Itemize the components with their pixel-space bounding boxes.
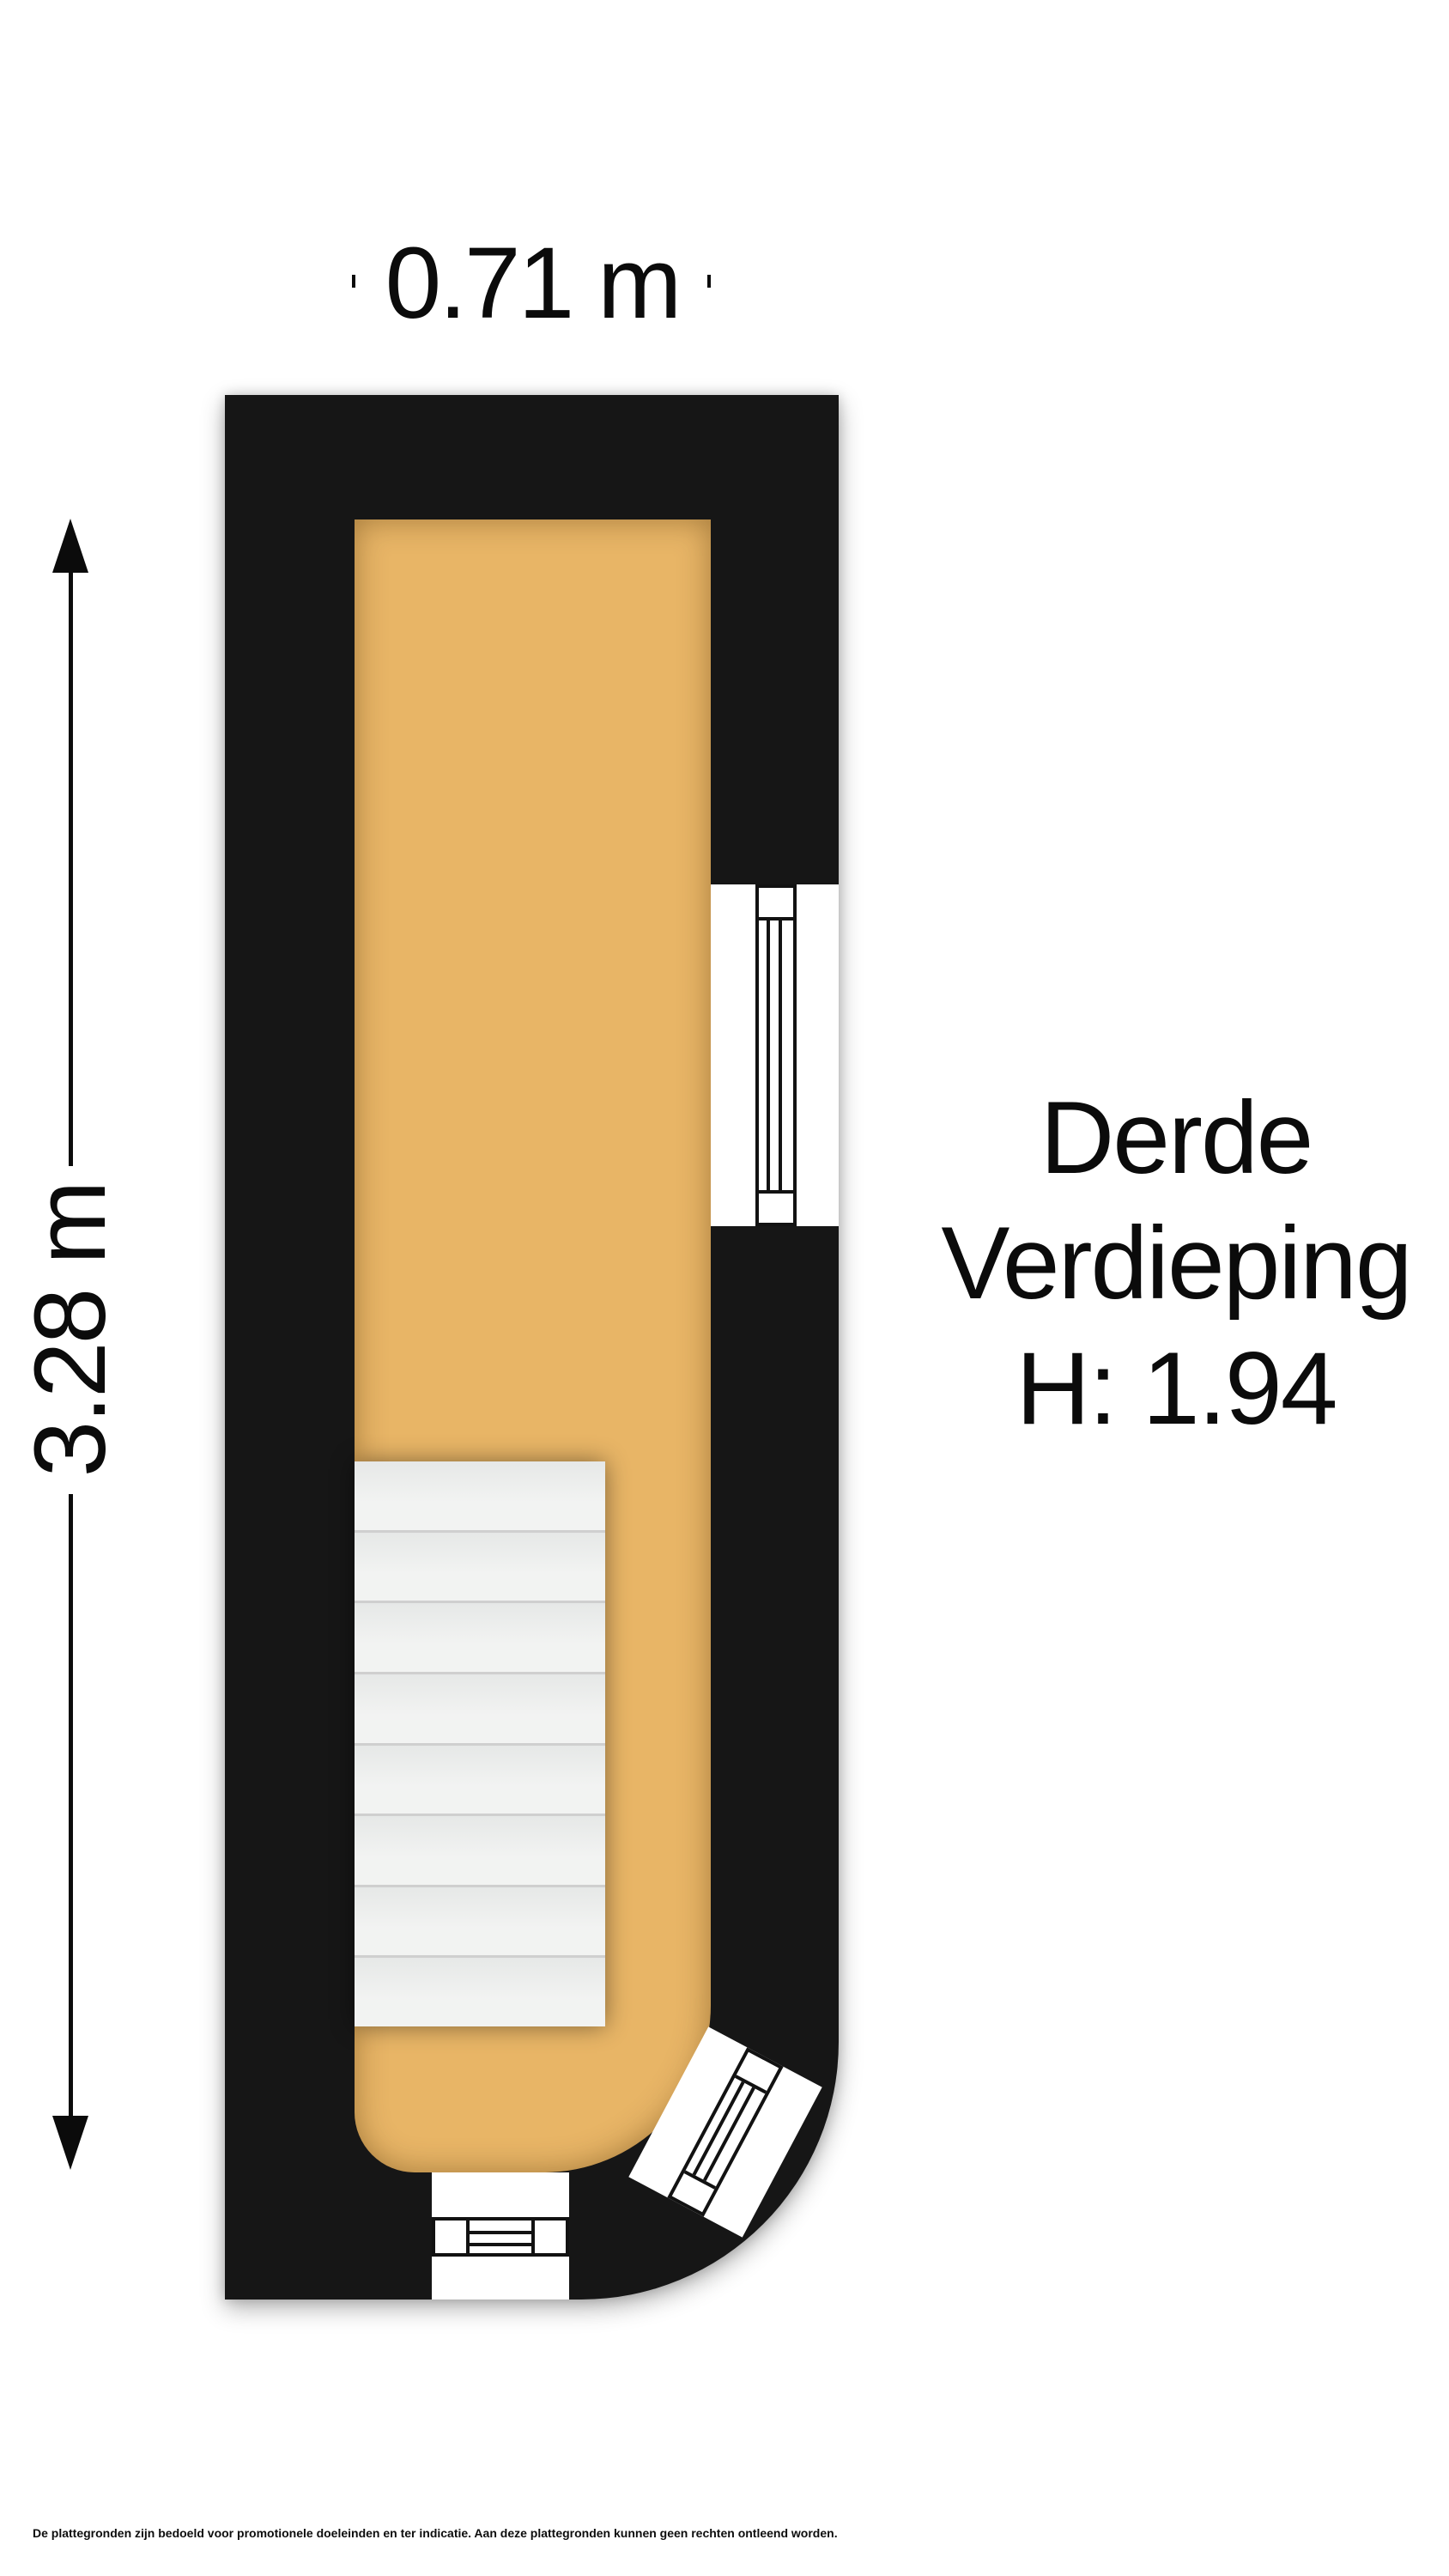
stair-tread — [355, 1885, 605, 1956]
dimension-width-tick-right — [707, 275, 711, 288]
floor-label-line3: H: 1.94 — [833, 1326, 1449, 1451]
arrow-down-icon — [52, 2116, 88, 2170]
floor-label-line1: Derde — [833, 1075, 1449, 1200]
stair-tread — [355, 1743, 605, 1814]
stair-tread — [355, 1461, 605, 1530]
stair-tread — [355, 1601, 605, 1672]
dimension-width-tick-left — [352, 275, 355, 288]
arrow-up-icon — [52, 519, 88, 573]
dimension-height-line-lower — [69, 1494, 73, 2123]
floor-label-line2: Verdieping — [833, 1200, 1449, 1326]
window-bottom — [432, 2172, 569, 2300]
stair-tread — [355, 1672, 605, 1743]
disclaimer-text: De plattegronden zijn bedoeld voor promo… — [33, 2526, 1406, 2540]
building-outline — [225, 395, 839, 2300]
window-right — [711, 884, 839, 1226]
window-corner-frame — [667, 2047, 783, 2216]
staircase — [355, 1461, 605, 2026]
stair-tread — [355, 1814, 605, 1885]
window-bottom-frame — [432, 2217, 569, 2257]
stair-tread — [355, 1955, 605, 2026]
stair-tread — [355, 1530, 605, 1601]
window-right-frame — [755, 884, 797, 1226]
floor-label: Derde Verdieping H: 1.94 — [833, 1075, 1449, 1451]
